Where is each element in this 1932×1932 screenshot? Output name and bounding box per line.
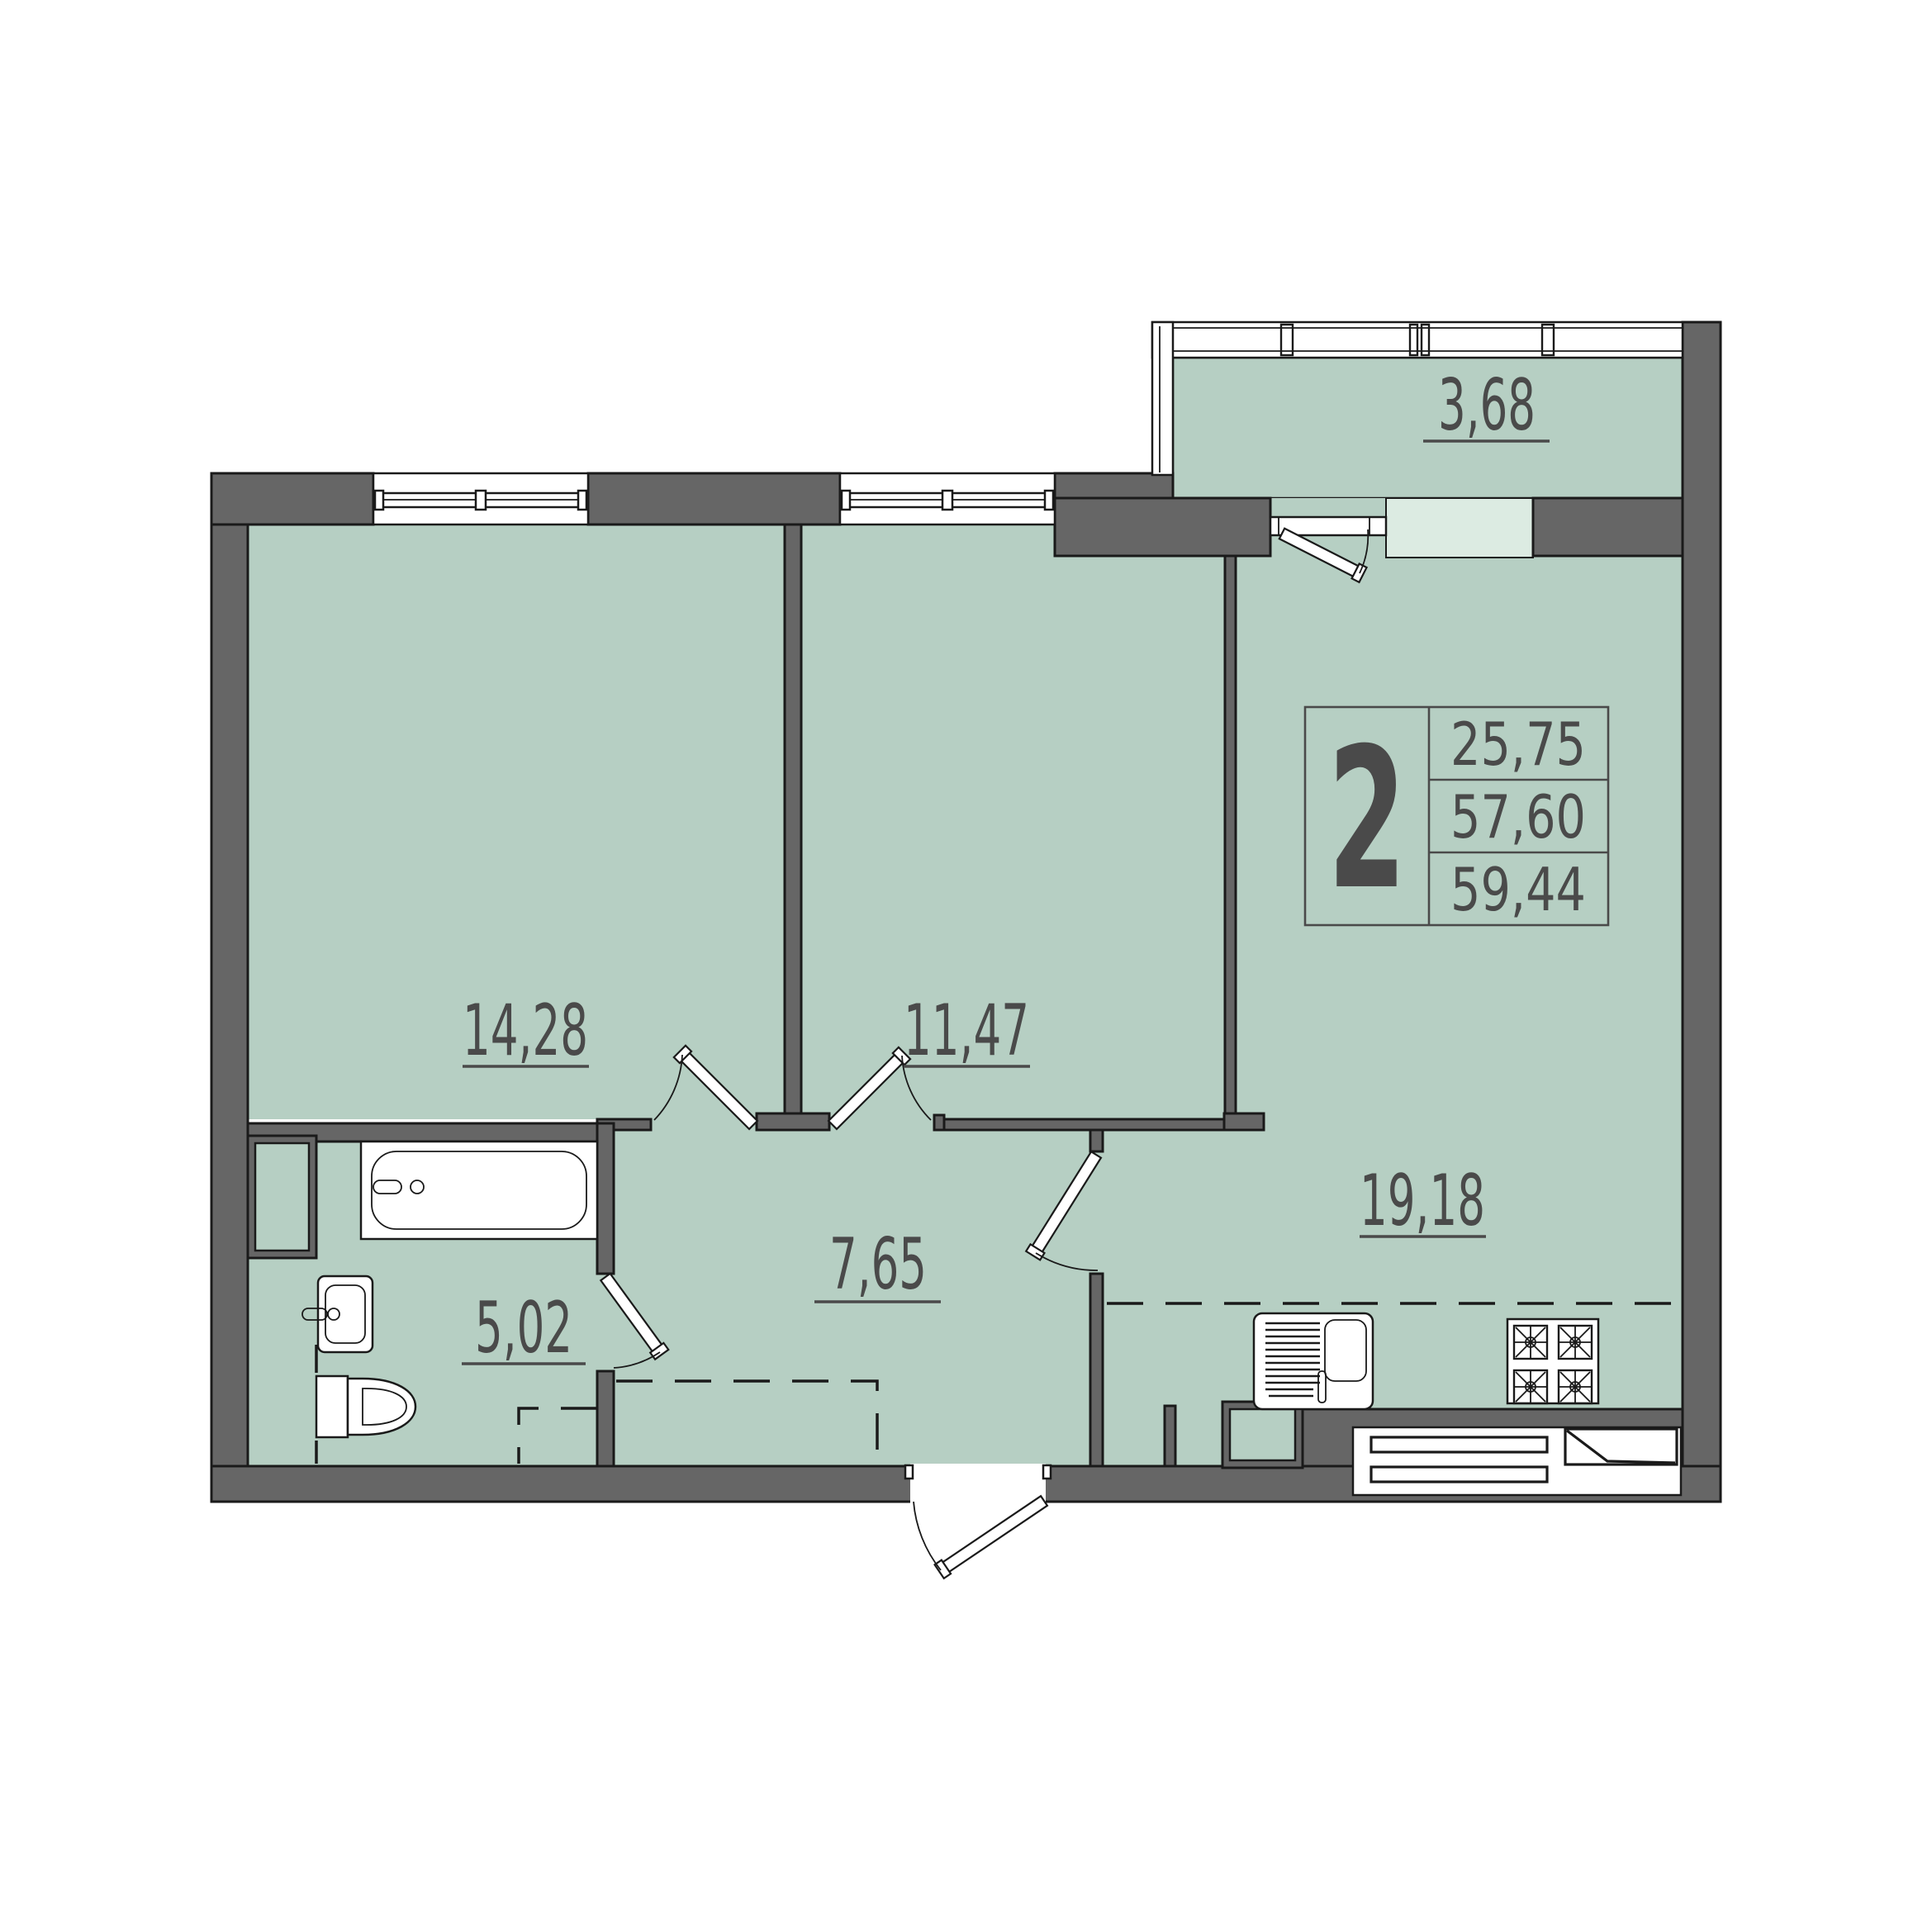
burner [1514, 1370, 1547, 1403]
wall-balcony-bottom-right [1533, 498, 1683, 556]
wall-exterior-left [211, 473, 248, 1502]
area-label-hallway: 7,65 [814, 1223, 941, 1306]
area-value-balcony: 3,68 [1438, 364, 1536, 447]
room-floor-kitchen-living [1236, 556, 1683, 1409]
burner [1514, 1326, 1547, 1359]
bathtub-icon [361, 1142, 597, 1239]
info-value-living-area: 25,75 [1450, 710, 1586, 779]
wall-exterior-top-1 [211, 473, 373, 525]
window-icon-room-1 [373, 473, 588, 525]
balcony-sill-block [1386, 498, 1533, 558]
wall-exterior-top-2 [588, 473, 840, 525]
area-value-room-1: 14,28 [463, 990, 588, 1072]
wall-kitchen-living-top [1055, 498, 1270, 556]
wall-room2-kitchen-block [1224, 1113, 1264, 1130]
room-count-value: 2 [1328, 707, 1407, 933]
stove-icon [1507, 1319, 1598, 1403]
wall-jamb-cap [934, 1115, 944, 1130]
entrance-jamb-right [1043, 1465, 1051, 1479]
burner [1559, 1326, 1592, 1359]
floor-plan-page: 14,28 11,47 7,65 5,02 19,18 3,68 2 25,75… [0, 0, 1932, 1932]
area-label-bathroom: 5,02 [462, 1287, 586, 1369]
duct-shaft-kitchen-inner [1230, 1409, 1295, 1460]
wall-hall-top-right [934, 1119, 1224, 1130]
window-icon-room-2 [840, 473, 1055, 525]
toilet-icon [316, 1376, 415, 1437]
entrance-opening [910, 1464, 1046, 1504]
wall-hall-t-junction [757, 1113, 829, 1130]
area-value-hallway: 7,65 [829, 1223, 927, 1306]
area-value-bathroom: 5,02 [475, 1287, 572, 1369]
info-value-area-without-balcony: 57,60 [1450, 782, 1586, 852]
wall-bathroom-right-upper [597, 1123, 614, 1274]
wall-room2-kitchen [1225, 556, 1236, 1130]
floor-plan-canvas: 14,28 11,47 7,65 5,02 19,18 3,68 2 25,75… [0, 0, 1932, 1932]
wall-kitchen-niche [1165, 1406, 1175, 1466]
wall-bathroom-right-stub [597, 1371, 614, 1466]
kitchen-sink-icon [1254, 1313, 1373, 1409]
duct-shaft-bathroom-inner [255, 1143, 309, 1251]
area-value-kitchen-living: 19,18 [1360, 1160, 1485, 1242]
area-label-room-2: 11,47 [904, 990, 1030, 1072]
wall-kitchen-door-lower [1090, 1274, 1103, 1466]
radiator-icon [1353, 1427, 1681, 1495]
area-label-kitchen-living: 19,18 [1360, 1160, 1486, 1242]
burner [1559, 1370, 1592, 1403]
entrance-jamb-left [905, 1465, 913, 1479]
room-floor-balcony [1173, 358, 1683, 498]
area-label-room-1: 14,28 [463, 990, 589, 1072]
wall-kitchen-door-upper [1090, 1130, 1103, 1151]
area-label-balcony: 3,68 [1423, 364, 1550, 447]
apartment-info-box: 2 25,75 57,60 59,44 [1305, 707, 1608, 933]
wall-exterior-right [1683, 322, 1721, 1502]
info-value-total-area: 59,44 [1450, 855, 1586, 924]
area-value-room-2: 11,47 [904, 990, 1029, 1072]
wall-between-rooms [785, 525, 801, 1113]
door-icon-entrance [914, 1494, 1049, 1578]
